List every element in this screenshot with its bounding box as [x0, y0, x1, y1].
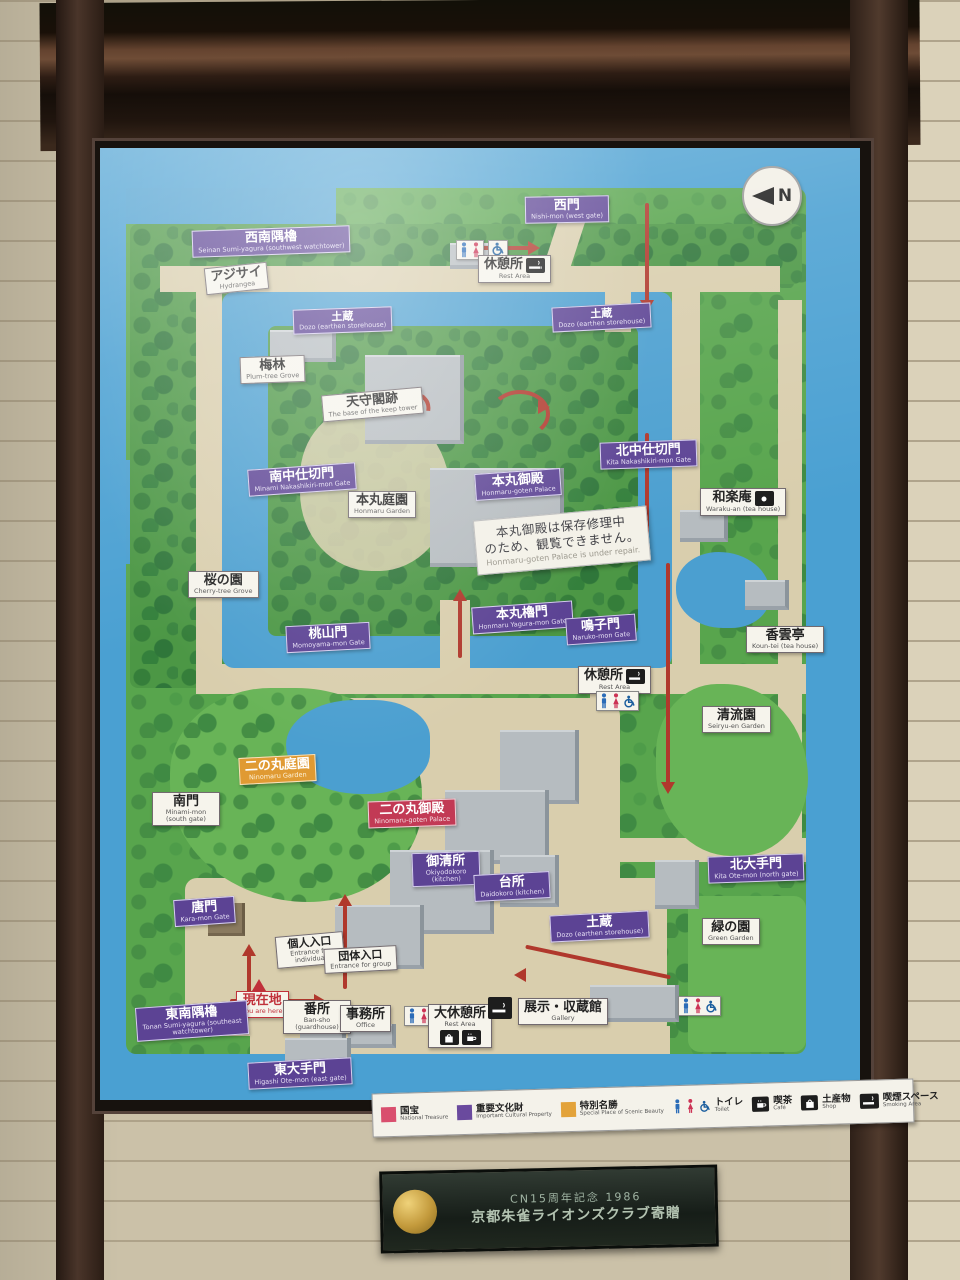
- you-are-here-marker: [252, 979, 266, 991]
- label-green-garden: 緑の園 Green Garden: [702, 918, 760, 945]
- sign-top-beam: [39, 0, 920, 151]
- label-en: Waraku-an (tea house): [706, 506, 780, 513]
- path-west: [196, 266, 222, 694]
- label-en: Seinan Sumi-yagura (southwest watchtower…: [198, 242, 344, 254]
- legend-en: Toilet: [715, 1107, 744, 1114]
- cafe-icon: [462, 1030, 481, 1045]
- shop-icon: [801, 1096, 818, 1111]
- smoking-icon: [488, 997, 512, 1019]
- wheelchair-icon: [623, 695, 636, 708]
- legend-item-toilet: トイレToilet: [673, 1097, 744, 1115]
- label-en: Daidokoro (kitchen): [480, 888, 544, 898]
- label-en: Ninomaru-goten Palace: [374, 816, 450, 826]
- toilet-female-icon: [686, 1099, 695, 1114]
- label-row: 和楽庵: [713, 491, 774, 506]
- label-jp: 展示・収蔵館: [524, 1001, 602, 1015]
- smoking-icon: [860, 1094, 879, 1110]
- label-en: Ninomaru Garden: [249, 772, 307, 782]
- label-en: Kita Nakashikiri-mon Gate: [606, 457, 691, 467]
- route-arrowhead: [528, 241, 540, 255]
- label-jp: 事務所: [346, 1008, 385, 1022]
- legend-item-cafe: 喫茶Café: [752, 1096, 792, 1113]
- label-sakura-no-sono: 桜の園 Cherry-tree Grove: [188, 571, 259, 598]
- label-dai-kyukeijo: 大休憩所 Rest Area: [428, 1004, 492, 1048]
- label-en: Naruko-mon Gate: [572, 631, 630, 642]
- label-jp: 桜の園: [204, 574, 243, 588]
- plaque-line2: 京都朱雀ライオンズクラブ寄贈: [471, 1204, 681, 1227]
- label-naruko-mon: 鳴子門 Naruko-mon Gate: [565, 614, 636, 646]
- label-jp: 南門: [173, 795, 199, 809]
- lions-club-medal-icon: [393, 1189, 438, 1234]
- legend-en: National Treasure: [400, 1116, 448, 1123]
- label-en: Cherry-tree Grove: [194, 588, 253, 595]
- label-ninomaru-goten: 二の丸御殿 Ninomaru-goten Palace: [368, 798, 457, 828]
- legend-en: Shop: [822, 1104, 851, 1111]
- label-kita-ote-mon: 北大手門 Kita Ote-mon (north gate): [708, 853, 805, 883]
- label-minami-mon: 南門 Minami-mon (south gate): [152, 792, 220, 826]
- label-row: 休憩所: [584, 669, 645, 684]
- toilet-female-icon: [693, 998, 703, 1014]
- label-koun-tei: 香雲亭 Koun-tei (tea house): [746, 626, 824, 653]
- label-jp: 休憩所: [484, 258, 523, 272]
- label-jp: 現在地: [243, 994, 282, 1008]
- route-arrow: [458, 600, 462, 658]
- route-arrowhead: [661, 782, 675, 794]
- route-arrowhead: [453, 589, 467, 601]
- castle-map: N 西南隅櫓 Seinan Sumi-yagura (southwest wat…: [100, 148, 860, 1100]
- label-row: 休憩所: [484, 258, 545, 273]
- label-jp: 和楽庵: [713, 491, 752, 505]
- smoking-icon: [526, 258, 545, 273]
- wheelchair-icon: [705, 1000, 718, 1013]
- label-kita-nakashikiri-mon: 北中仕切門 Kita Nakashikiri-mon Gate: [600, 439, 698, 469]
- label-en: Higashi Ote-mon (east gate): [254, 1075, 347, 1087]
- important-cultural-property-swatch: [457, 1105, 472, 1120]
- label-en: Momoyama-mon Gate: [292, 639, 365, 650]
- route-arrow-curve: [490, 390, 550, 438]
- label-jp: 清流園: [717, 709, 756, 723]
- label-seiryu-en: 清流園 Seiryu-en Garden: [702, 706, 771, 733]
- label-ninomaru-garden: 二の丸庭園 Ninomaru Garden: [238, 754, 316, 785]
- compass-rose: N: [742, 166, 802, 226]
- building-storehouse-east: [655, 860, 699, 909]
- toilet-male-icon: [599, 693, 609, 709]
- label-jp: 番所: [304, 1003, 330, 1017]
- label-en: Koun-tei (tea house): [752, 643, 818, 650]
- national-treasure-swatch: [381, 1107, 396, 1122]
- label-jp: 香雲亭: [766, 629, 805, 643]
- legend-en: Important Cultural Property: [476, 1113, 552, 1121]
- label-en: Rest Area: [444, 1021, 475, 1028]
- camera-icon: [755, 491, 774, 506]
- label-en: Rest Area: [499, 273, 530, 280]
- route-arrowhead: [338, 894, 352, 906]
- label-nishi-mon: 西門 Nishi-mon (west gate): [525, 195, 609, 224]
- route-arrow: [645, 203, 649, 303]
- label-honmaru-garden: 本丸庭園 Honmaru Garden: [348, 491, 416, 518]
- toilet-male-icon: [681, 998, 691, 1014]
- legend-item-important-cultural-property: 重要文化財Important Cultural Property: [457, 1103, 552, 1121]
- legend-item-national-treasure: 国宝National Treasure: [381, 1106, 448, 1124]
- toilet-male-icon: [673, 1099, 682, 1114]
- toilet-female-icon: [611, 693, 621, 709]
- label-en: Ban-sho (guardhouse): [289, 1017, 345, 1031]
- toilet-male-icon: [407, 1008, 417, 1024]
- label-kara-mon: 唐門 Kara-mon Gate: [173, 896, 236, 927]
- label-rest-area-mid: 休憩所 Rest Area: [578, 666, 651, 694]
- label-en: Seiryu-en Garden: [708, 723, 765, 730]
- label-en: Tonan Sumi-yagura (southeast watchtower): [142, 1018, 243, 1039]
- legend-item-smoking: 喫煙スペースSmoking Area: [860, 1092, 939, 1110]
- label-en: Kita Ote-mon (north gate): [714, 871, 799, 881]
- legend-item-scenic-beauty: 特別名勝Special Place of Scenic Beauty: [561, 1100, 665, 1119]
- route-arrowhead: [514, 968, 526, 982]
- toilet-male-icon: [459, 242, 469, 258]
- label-en: Nishi-mon (west gate): [531, 212, 603, 220]
- label-higashi-ote-mon: 東大手門 Higashi Ote-mon (east gate): [247, 1057, 353, 1089]
- label-daidokoro: 台所 Daidokoro (kitchen): [473, 871, 550, 902]
- legend-en: Special Place of Scenic Beauty: [580, 1110, 664, 1118]
- label-en: Rest Area: [599, 684, 630, 691]
- label-waraku-an: 和楽庵 Waraku-an (tea house): [700, 488, 786, 516]
- label-dozo-south: 土蔵 Dozo (earthen storehouse): [549, 910, 649, 942]
- building-koun-tei: [745, 580, 789, 610]
- route-arrow: [666, 563, 670, 785]
- label-dozo-north: 土蔵 Dozo (earthen storehouse): [551, 302, 651, 332]
- legend-item-shop: 土産物Shop: [801, 1094, 851, 1111]
- label-en: Okiyodokoro (kitchen): [418, 868, 474, 884]
- label-jp: 休憩所: [584, 669, 623, 683]
- label-en: Plum-tree Grove: [246, 372, 299, 381]
- label-dantai-iriguchi: 団体入口 Entrance for group: [323, 945, 397, 974]
- label-gallery: 展示・収蔵館 Gallery: [518, 998, 608, 1025]
- compass-north-label: N: [778, 186, 792, 206]
- smoking-icon: [626, 669, 645, 684]
- label-en: Kara-mon Gate: [180, 913, 230, 923]
- label-seinan-sumiyagura: 西南隅櫓 Seinan Sumi-yagura (southwest watch…: [192, 225, 351, 258]
- label-dozo-west: 土蔵 Dozo (earthen storehouse): [293, 306, 393, 334]
- scenic-beauty-swatch: [561, 1102, 576, 1117]
- label-en: Minami-mon (south gate): [158, 809, 214, 823]
- shop-icon: [440, 1030, 459, 1045]
- label-jp: 本丸庭園: [356, 494, 408, 508]
- label-jp: 大休憩所: [434, 1007, 486, 1021]
- toilet-icon: [678, 996, 721, 1016]
- wheelchair-icon: [699, 1100, 711, 1112]
- label-en: Dozo (earthen storehouse): [558, 318, 645, 330]
- donor-plaque: CN15周年記念 1986 京都朱雀ライオンズクラブ寄贈: [379, 1164, 719, 1253]
- label-okiyodokoro: 御清所 Okiyodokoro (kitchen): [411, 851, 480, 887]
- legend-en: Café: [773, 1106, 792, 1112]
- label-en: Dozo (earthen storehouse): [299, 321, 386, 331]
- label-en: Hydrangea: [219, 280, 255, 291]
- cafe-icon: [752, 1097, 769, 1112]
- label-bairin: 梅林 Plum-tree Grove: [240, 355, 306, 384]
- label-jimusho: 事務所 Office: [340, 1005, 391, 1032]
- label-en: Gallery: [551, 1015, 574, 1022]
- label-en: Honmaru Garden: [354, 508, 410, 515]
- label-rest-area-north: 休憩所 Rest Area: [478, 255, 551, 283]
- label-en: Dozo (earthen storehouse): [556, 928, 643, 940]
- label-en: Entrance for group: [330, 960, 391, 970]
- label-momoyama-mon: 桃山門 Momoyama-mon Gate: [285, 622, 371, 653]
- toilet-icon: [596, 691, 639, 711]
- bridge-west: [440, 600, 470, 670]
- route-arrowhead: [538, 400, 550, 414]
- compass-needle-icon: [752, 187, 774, 205]
- label-en: You are here: [242, 1008, 283, 1015]
- label-en: Office: [356, 1022, 375, 1029]
- label-icons-row: [440, 1030, 481, 1045]
- label-en: Green Garden: [708, 935, 754, 942]
- moat-pocket-northwest: [126, 188, 336, 224]
- route-arrowhead: [242, 944, 256, 956]
- label-jp: 緑の園: [711, 921, 750, 935]
